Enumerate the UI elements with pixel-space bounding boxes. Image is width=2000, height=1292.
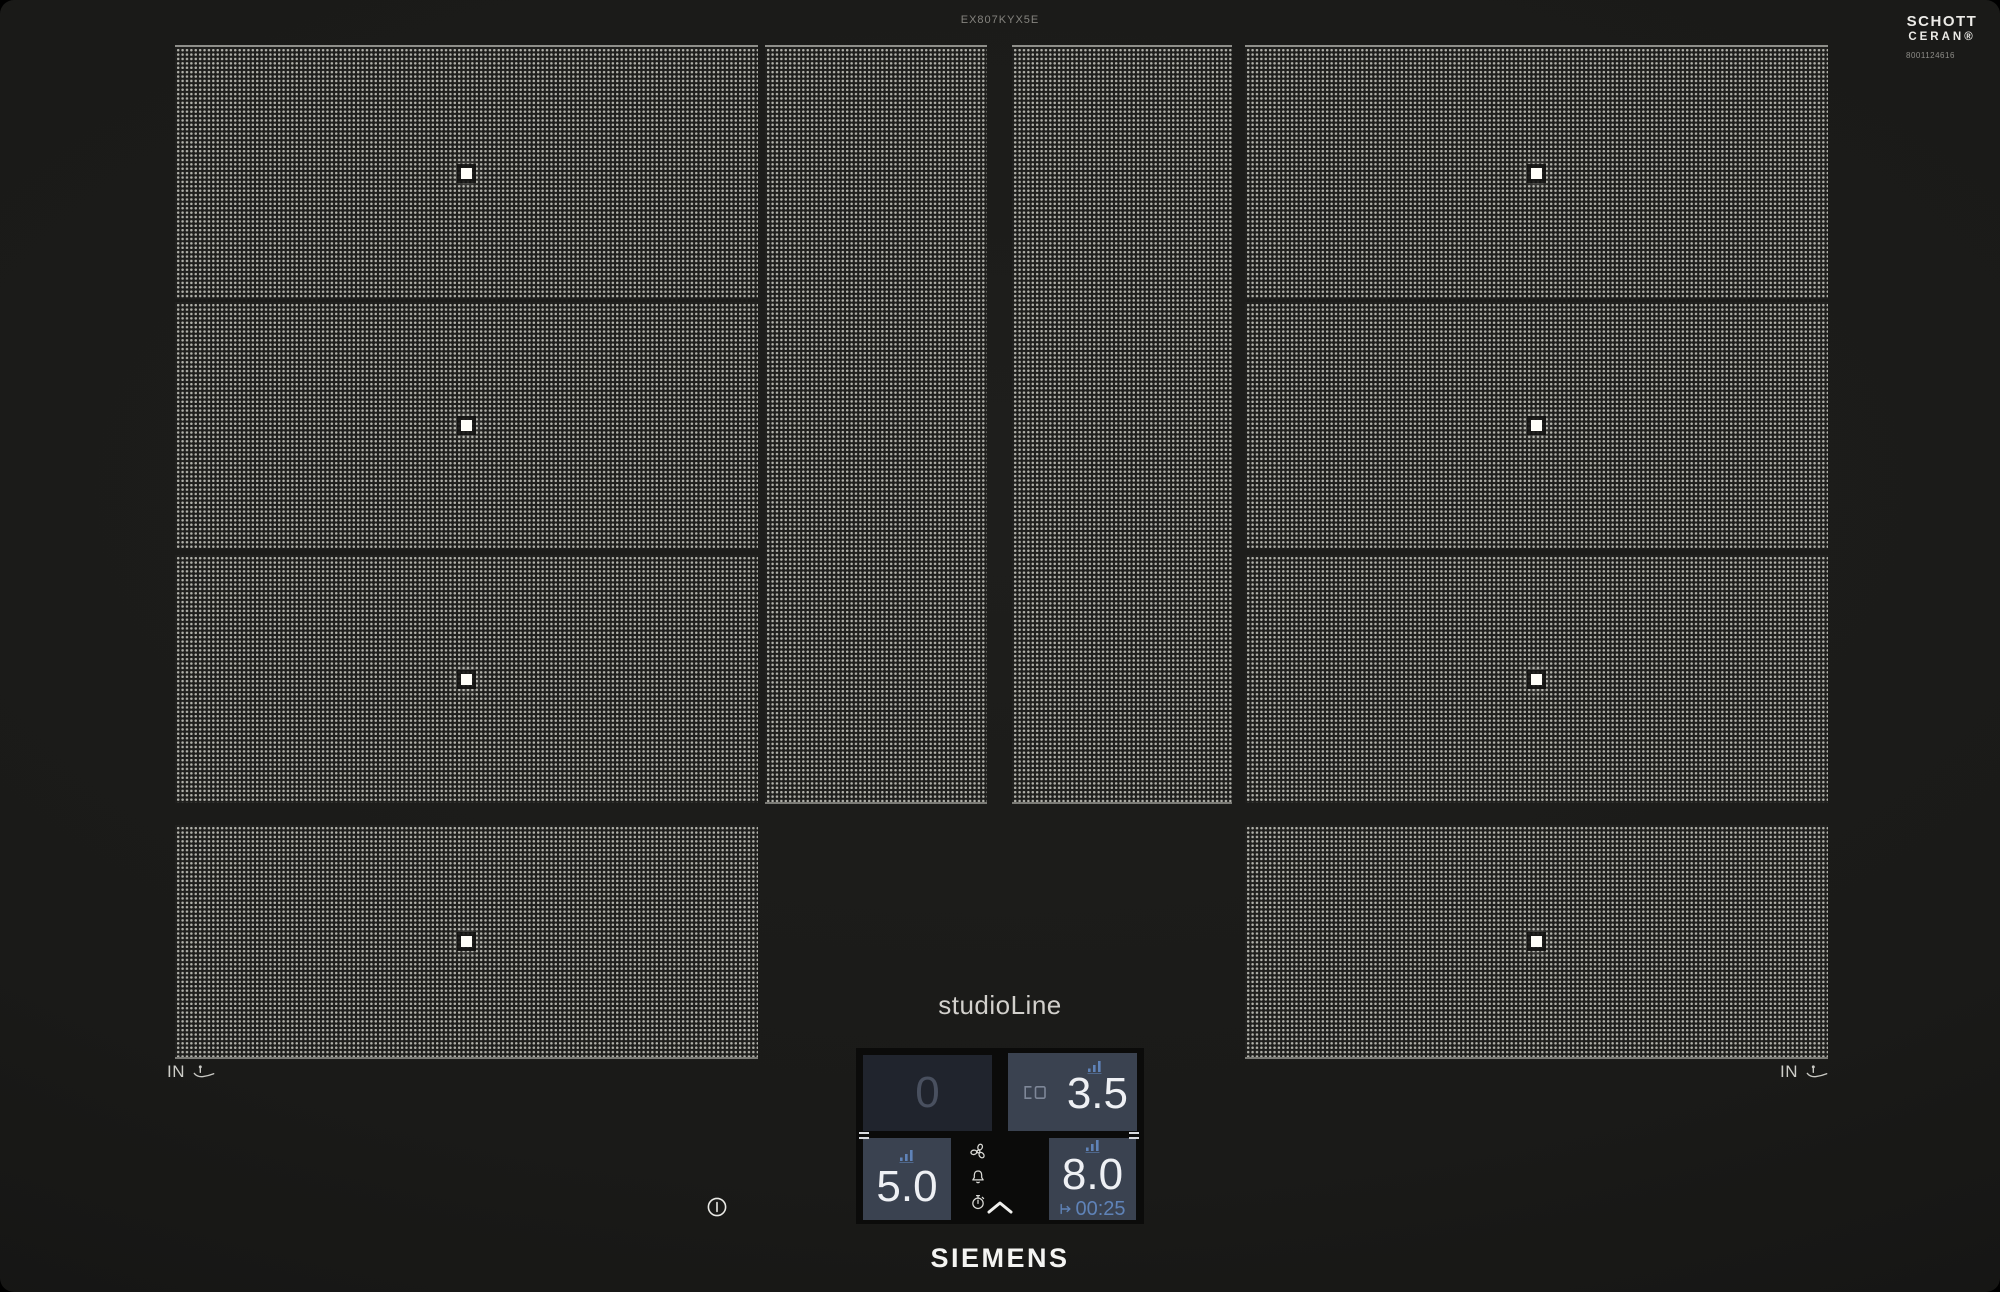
cooking-zone-left-4 bbox=[175, 825, 758, 1059]
zone-center-marker bbox=[461, 420, 472, 431]
zone-display-rear-left[interactable]: 0 bbox=[863, 1055, 992, 1131]
bell-icon[interactable] bbox=[968, 1167, 988, 1187]
touch-control-panel: 0 3.5 5.0 bbox=[856, 1048, 1144, 1224]
induction-marking-left: IN bbox=[167, 1062, 216, 1082]
power-level-value: 5.0 bbox=[876, 1165, 937, 1209]
timer-display: 00:25 bbox=[1059, 1199, 1125, 1219]
zone-center-marker bbox=[1531, 936, 1542, 947]
zone-center-marker bbox=[461, 936, 472, 947]
timer-end-arrow-icon bbox=[1059, 1202, 1073, 1216]
glass-brand-line1: SCHOTT bbox=[1906, 14, 1978, 31]
zone-center-marker bbox=[1531, 420, 1542, 431]
zone-display-rear-right[interactable]: 3.5 bbox=[1008, 1053, 1137, 1131]
slider-handle-right[interactable] bbox=[1129, 1132, 1139, 1139]
zone-center-marker bbox=[1531, 674, 1542, 685]
cooking-zone-right-3 bbox=[1245, 555, 1828, 803]
induction-marking-right: IN bbox=[1780, 1062, 1829, 1082]
induction-label: IN bbox=[1780, 1062, 1798, 1082]
cooking-zone-center-left bbox=[765, 45, 987, 804]
glass-brand-code: 8001124616 bbox=[1906, 52, 1978, 61]
power-level-bars-icon bbox=[899, 1149, 915, 1163]
power-icon[interactable] bbox=[705, 1195, 729, 1219]
power-level-value: 3.5 bbox=[1067, 1072, 1128, 1116]
slider-handle-left[interactable] bbox=[859, 1132, 869, 1139]
glass-branding: SCHOTT CERAN® 8001124616 bbox=[1906, 14, 1978, 61]
cooking-zone-right-4 bbox=[1245, 825, 1828, 1059]
model-number: EX807KYX5E bbox=[0, 14, 2000, 26]
brand-logo: SIEMENS bbox=[0, 1243, 2000, 1274]
cooking-zone-left-3 bbox=[175, 555, 758, 803]
zone-center-marker bbox=[461, 168, 472, 179]
cooking-zone-center-right bbox=[1012, 45, 1232, 804]
product-line-label: studioLine bbox=[0, 990, 2000, 1021]
zone-display-front-left[interactable]: 5.0 bbox=[863, 1138, 951, 1220]
cooking-zone-left-2 bbox=[175, 302, 758, 549]
glass-brand-line2: CERAN® bbox=[1906, 31, 1978, 44]
zone-display-front-right[interactable]: 8.0 00:25 bbox=[1049, 1138, 1136, 1220]
induction-cooktop-surface: EX807KYX5E SCHOTT CERAN® 8001124616 IN I… bbox=[0, 0, 2000, 1292]
zone-center-marker bbox=[1531, 168, 1542, 179]
pan-detection-icon bbox=[192, 1063, 216, 1081]
cooking-zone-right-2 bbox=[1245, 302, 1828, 549]
timer-value: 00:25 bbox=[1075, 1199, 1125, 1219]
chevron-up-icon[interactable] bbox=[985, 1199, 1015, 1220]
bridge-zone-icon bbox=[1023, 1085, 1047, 1100]
power-level-value: 8.0 bbox=[1062, 1153, 1123, 1197]
induction-label: IN bbox=[167, 1062, 185, 1082]
power-level-value: 0 bbox=[915, 1071, 939, 1115]
pan-detection-icon bbox=[1805, 1063, 1829, 1081]
zone-center-marker bbox=[461, 674, 472, 685]
cooking-zone-left-1 bbox=[175, 45, 758, 299]
fan-icon[interactable] bbox=[968, 1141, 989, 1162]
cooking-zone-right-1 bbox=[1245, 45, 1828, 299]
